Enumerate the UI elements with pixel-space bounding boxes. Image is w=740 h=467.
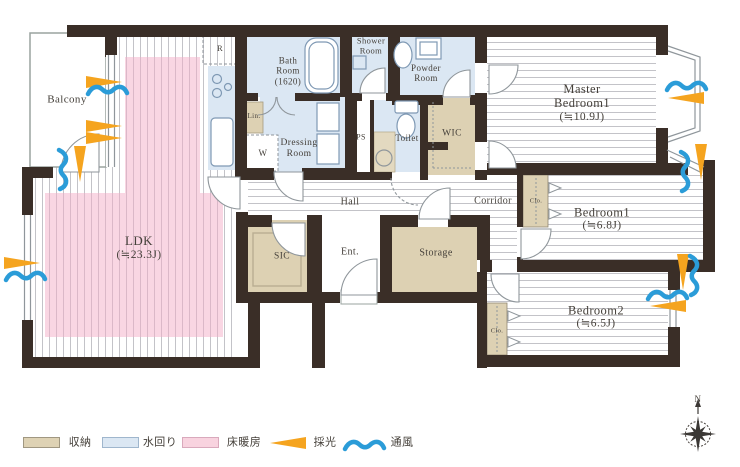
toilet-tank (395, 101, 418, 113)
legend-ventilation-icon (345, 442, 384, 449)
hall-label: Hall (341, 196, 360, 207)
bedroom1-label: Bedroom1 (≒6.8J) (574, 205, 630, 232)
legend-floor-heating-swatch (182, 437, 219, 448)
kitchen-sink (211, 118, 233, 166)
wic-label: WIC (442, 129, 462, 140)
shower-room-label: Shower Room (357, 36, 385, 55)
washer-label: W (259, 148, 268, 158)
refrigerator-label: R (217, 44, 223, 54)
ldk-side-window (22, 215, 33, 320)
bath-room-label: Bath Room (1620) (275, 56, 301, 87)
legend-storage-label: 収納 (69, 437, 92, 450)
balcony-label: Balcony (47, 94, 86, 107)
legend-daylight-label: 採光 (314, 437, 337, 450)
powder-sink (394, 42, 412, 68)
bedroom2-label: Bedroom2 (≒6.5J) (568, 303, 624, 330)
storage-floor (392, 227, 477, 292)
floor-heating-living (45, 193, 223, 337)
floor-heating-kitchen (125, 57, 200, 193)
ldk-name: LDK (116, 234, 161, 249)
legend-floor-heating-label: 床暖房 (227, 437, 261, 450)
bedroom2-closet-label: Clo. (491, 327, 504, 334)
dressing-vanity (317, 134, 339, 164)
compass-north-label: N (695, 394, 702, 404)
storage-label: Storage (419, 247, 452, 258)
compass-icon (680, 399, 716, 452)
powder-room-label: Powder Room (411, 63, 441, 84)
entrance-label: Ent. (341, 246, 359, 257)
ldk-size: (≒23.3J) (116, 249, 161, 262)
legend-daylight-icon (270, 437, 306, 449)
bedroom1-closet-label: Clo. (530, 197, 543, 204)
master-bedroom-label: Master Bedroom1 (≒10.9J) (554, 82, 610, 124)
legend-storage-swatch (23, 437, 60, 448)
balcony-window (106, 55, 117, 167)
legend-water-swatch (102, 437, 139, 448)
sic-label: SIC (274, 252, 290, 263)
linen-label: Lin. (247, 113, 260, 121)
corridor-label: Corridor (474, 195, 512, 206)
floor-plan: Balcony LDK (≒23.3J) R Bath Room (1620) … (0, 0, 740, 467)
dressing-vanity (317, 103, 339, 131)
dressing-room-label: Dressing Room (281, 138, 318, 160)
corridor-branch-floor (490, 215, 517, 262)
floor-plan-drawing (0, 0, 740, 467)
ps-label: PS (356, 132, 366, 141)
bathtub-inner (309, 42, 334, 89)
daylight-icon (668, 92, 704, 104)
legend-ventilation-label: 通風 (391, 437, 414, 450)
entrance-door (341, 259, 377, 295)
legend-water-label: 水回り (143, 437, 177, 450)
ldk-label: LDK (≒23.3J) (116, 234, 161, 262)
toilet-label: Toilet (395, 133, 418, 143)
